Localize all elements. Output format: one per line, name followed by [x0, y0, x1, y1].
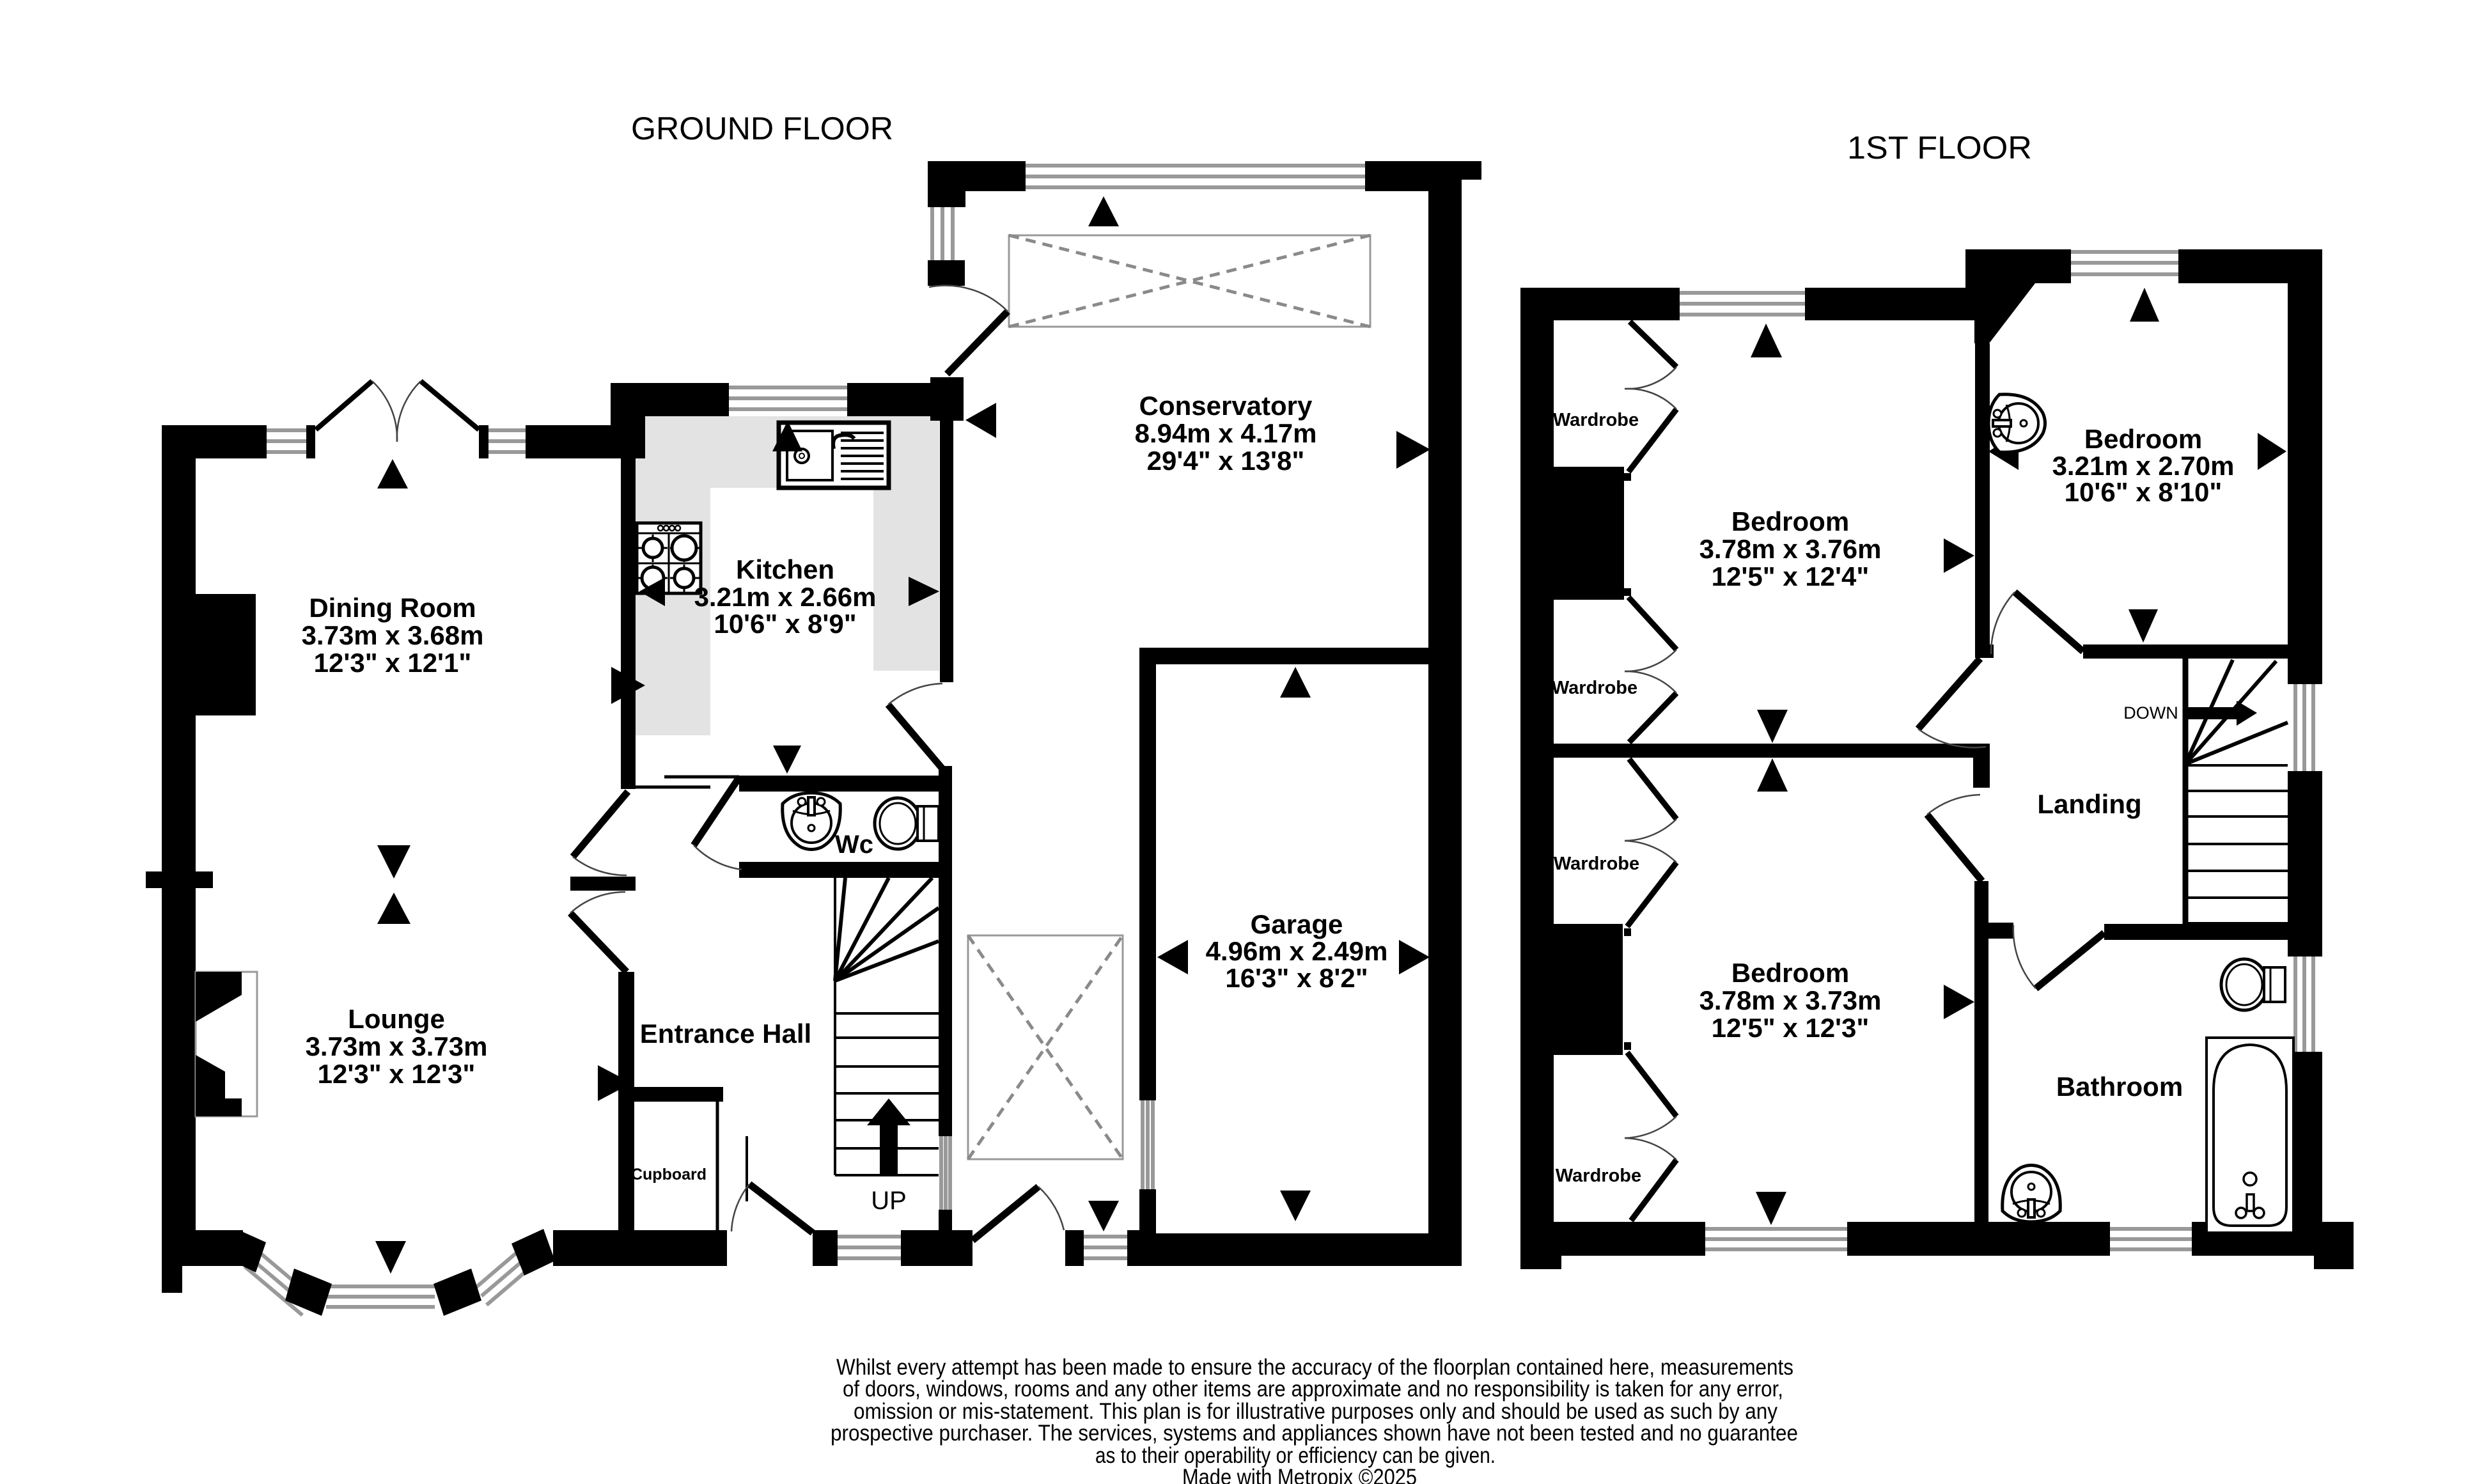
svg-text:Bedroom: Bedroom	[2084, 424, 2202, 454]
svg-text:3.78m x 3.73m: 3.78m x 3.73m	[1699, 985, 1882, 1015]
svg-text:12'5" x 12'4": 12'5" x 12'4"	[1712, 561, 1870, 591]
svg-text:29'4" x 13'8": 29'4" x 13'8"	[1147, 446, 1305, 476]
svg-text:3.73m x 3.73m: 3.73m x 3.73m	[306, 1031, 488, 1061]
svg-text:Made with Metropix ©2025: Made with Metropix ©2025	[1182, 1465, 1417, 1484]
svg-text:12'3" x 12'1": 12'3" x 12'1"	[314, 648, 472, 678]
svg-text:3.21m x 2.70m: 3.21m x 2.70m	[2052, 451, 2235, 481]
svg-text:GROUND FLOOR: GROUND FLOOR	[631, 111, 893, 146]
svg-text:Entrance Hall: Entrance Hall	[640, 1019, 811, 1049]
svg-text:Lounge: Lounge	[348, 1004, 445, 1034]
svg-text:3.21m x 2.66m: 3.21m x 2.66m	[694, 582, 877, 612]
svg-text:Bathroom: Bathroom	[2056, 1072, 2183, 1102]
svg-text:Dining Room: Dining Room	[309, 593, 476, 623]
svg-text:Conservatory: Conservatory	[1139, 391, 1313, 421]
svg-text:UP: UP	[871, 1187, 907, 1215]
svg-text:Wardrobe: Wardrobe	[1552, 678, 1637, 698]
svg-text:16'3" x 8'2": 16'3" x 8'2"	[1225, 963, 1368, 993]
svg-text:3.78m x 3.76m: 3.78m x 3.76m	[1699, 534, 1882, 564]
svg-text:Cupboard: Cupboard	[631, 1166, 707, 1183]
svg-text:4.96m x 2.49m: 4.96m x 2.49m	[1206, 936, 1388, 966]
svg-text:Wc: Wc	[835, 831, 873, 859]
svg-text:Bedroom: Bedroom	[1731, 958, 1849, 988]
svg-text:of doors, windows, rooms and a: of doors, windows, rooms and any other i…	[843, 1377, 1783, 1402]
svg-text:DOWN: DOWN	[2123, 703, 2178, 722]
svg-text:Wardrobe: Wardrobe	[1556, 1166, 1641, 1186]
svg-text:3.73m x 3.68m: 3.73m x 3.68m	[302, 620, 484, 650]
svg-text:Garage: Garage	[1251, 909, 1343, 939]
svg-text:Landing: Landing	[2037, 789, 2141, 819]
svg-text:prospective purchaser. The ser: prospective purchaser. The services, sys…	[831, 1421, 1798, 1446]
svg-text:1ST FLOOR: 1ST FLOOR	[1847, 130, 2032, 166]
svg-text:12'3" x 12'3": 12'3" x 12'3"	[318, 1059, 476, 1089]
svg-text:10'6" x 8'9": 10'6" x 8'9"	[714, 609, 856, 639]
svg-text:Kitchen: Kitchen	[736, 554, 834, 584]
svg-text:8.94m x 4.17m: 8.94m x 4.17m	[1135, 418, 1317, 448]
svg-text:Bedroom: Bedroom	[1731, 506, 1849, 536]
svg-text:10'6" x 8'10": 10'6" x 8'10"	[2065, 477, 2222, 507]
svg-text:12'5" x 12'3": 12'5" x 12'3"	[1712, 1013, 1870, 1043]
svg-text:Wardrobe: Wardrobe	[1553, 410, 1639, 430]
svg-text:Wardrobe: Wardrobe	[1554, 854, 1639, 874]
